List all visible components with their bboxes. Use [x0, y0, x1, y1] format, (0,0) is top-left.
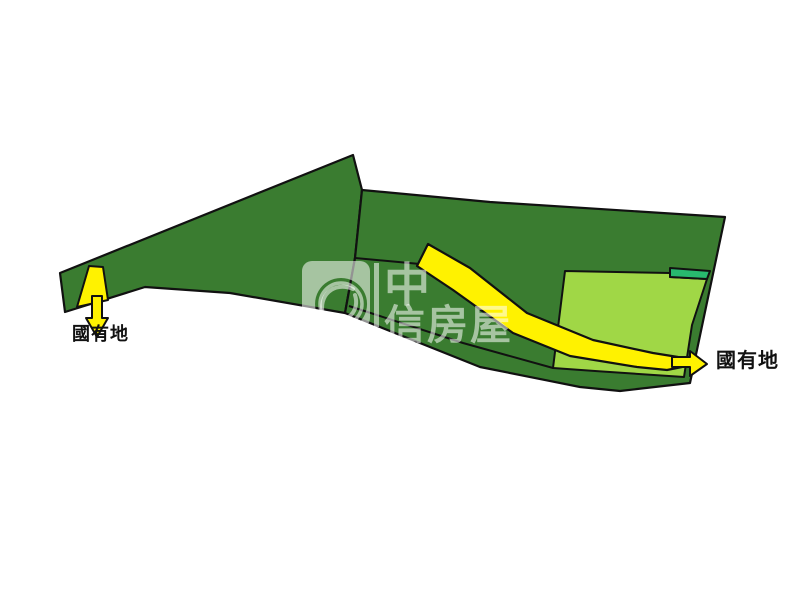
watermark-text-line2: 信房屋 — [384, 305, 513, 346]
watermark-divider-bar — [374, 263, 379, 327]
strip-teal-green — [670, 268, 710, 279]
state-land-label-left: 國有地 — [72, 326, 129, 344]
state-land-label-right: 國有地 — [716, 350, 779, 370]
land-parcel-map: 中 信房屋 國有地 國有地 — [0, 0, 800, 600]
